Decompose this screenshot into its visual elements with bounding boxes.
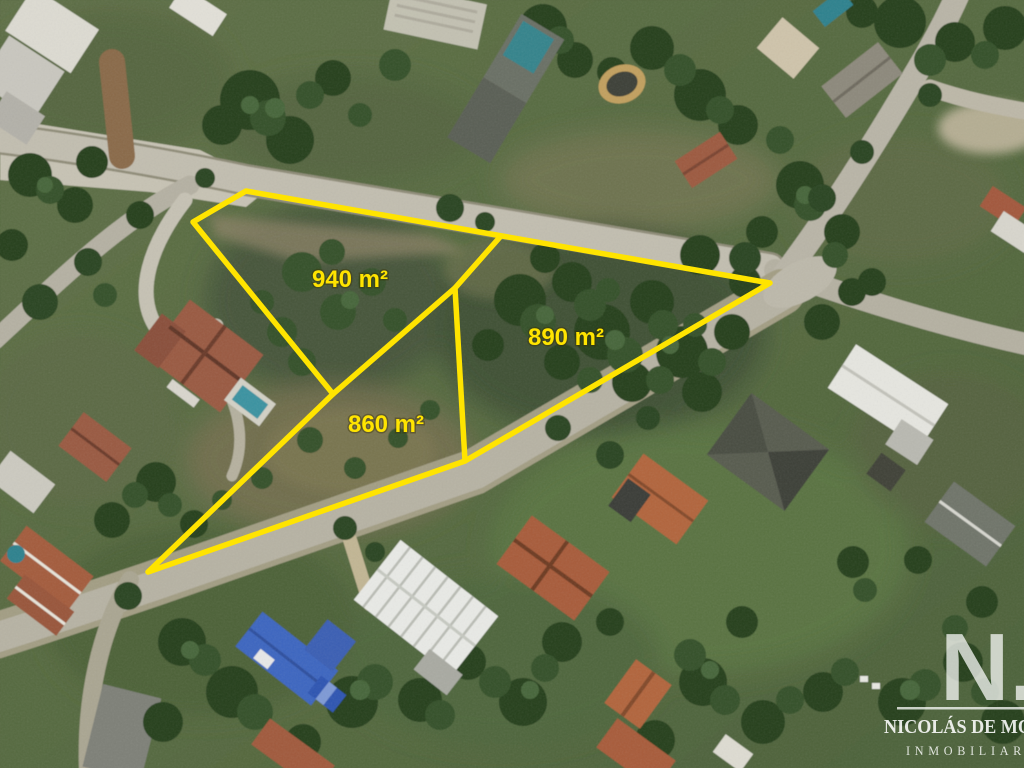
aerial-listing-photo: 940 m² 890 m² 860 m² N. NICOLÁS DE MO IN… — [0, 0, 1024, 768]
parcel-label-890: 890 m² — [528, 324, 604, 351]
watermark-agency-name: NICOLÁS DE MO — [884, 715, 1024, 738]
watermark-divider-line — [897, 707, 1024, 710]
photo-grain — [0, 0, 1024, 768]
watermark-monogram: N. — [940, 614, 1024, 721]
satellite-image: 940 m² 890 m² 860 m² N. NICOLÁS DE MO IN… — [0, 0, 1024, 768]
parcel-label-860: 860 m² — [348, 411, 424, 438]
parcel-label-940: 940 m² — [312, 266, 388, 293]
watermark-agency-tagline: INMOBILIAR — [906, 743, 1024, 758]
